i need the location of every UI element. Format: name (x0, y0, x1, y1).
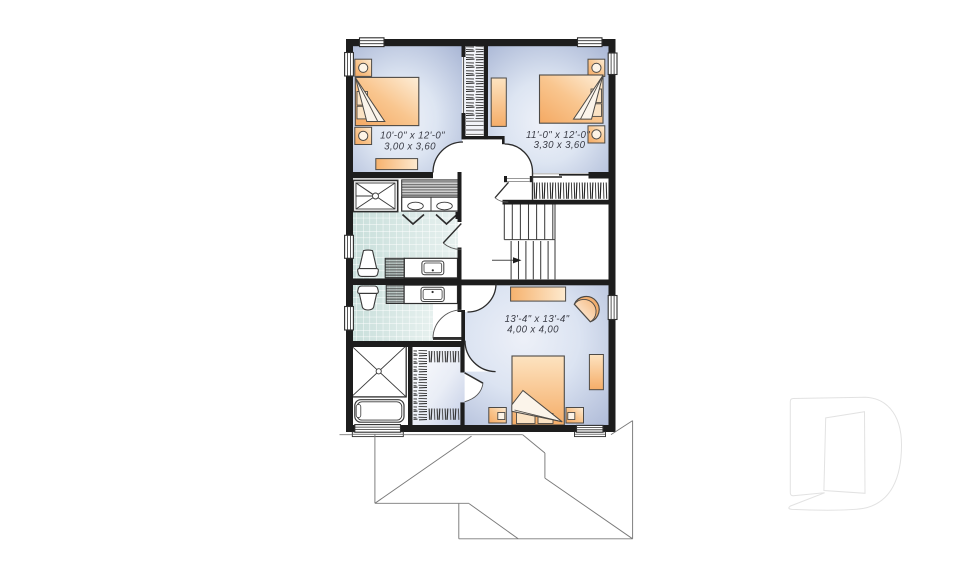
svg-text:10'-0" x 12'-0": 10'-0" x 12'-0" (380, 131, 445, 142)
svg-text:3,30 x 3,60: 3,30 x 3,60 (534, 140, 586, 151)
svg-text:3,00 x 3,60: 3,00 x 3,60 (384, 142, 436, 153)
svg-text:13'-4" x 13'-4": 13'-4" x 13'-4" (505, 314, 570, 325)
svg-text:4,00 x 4,00: 4,00 x 4,00 (507, 325, 559, 336)
